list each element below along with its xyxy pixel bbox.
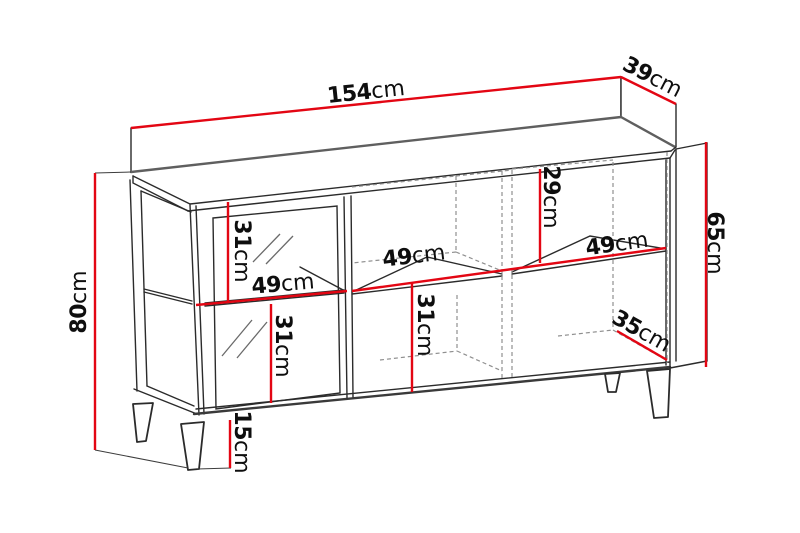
dim-unit: cm <box>280 269 316 297</box>
dim-value: 65 <box>702 211 727 241</box>
dim-label-overall-height: 80cm <box>69 270 91 333</box>
dim-value: 15 <box>229 410 254 440</box>
dim-value: 49 <box>250 272 282 299</box>
dim-label-leg-height: 15cm <box>230 410 252 473</box>
dim-label-carcass-height: 65cm <box>703 211 725 274</box>
dim-value: 31 <box>412 293 437 323</box>
leg-front-left <box>181 422 204 470</box>
dim-label-left-shelf-width: 49cm <box>251 271 316 298</box>
dim-label-left-upper-height: 31cm <box>230 219 252 282</box>
dim-label-left-lower-height: 31cm <box>271 314 293 377</box>
dim-value: 31 <box>270 314 295 344</box>
glass-side-panel <box>141 191 194 406</box>
dim-value: 154 <box>326 80 373 110</box>
dim-unit: cm <box>412 323 437 357</box>
dim-label-middle-lower-height: 31cm <box>413 293 435 356</box>
dim-unit: cm <box>702 241 727 275</box>
leg-front-right <box>647 369 670 418</box>
dim-unit: cm <box>410 240 446 269</box>
dim-value: 29 <box>538 165 563 195</box>
witness-lines <box>95 172 231 469</box>
dim-unit: cm <box>613 228 650 257</box>
dim-unit: cm <box>67 270 92 304</box>
dim-value: 31 <box>229 219 254 249</box>
legs <box>133 369 670 470</box>
dim-value: 49 <box>381 244 413 272</box>
dim-unit: cm <box>229 440 254 474</box>
dim-value: 49 <box>584 232 617 261</box>
dim-unit: cm <box>538 195 563 229</box>
dim-label-right-upper-height: 29cm <box>539 165 561 228</box>
dimension-diagram: 154cm 39cm 80cm 65cm 29cm 31cm 49cm 31cm… <box>0 0 800 533</box>
dim-unit: cm <box>270 344 295 378</box>
leg-back-left <box>133 403 153 442</box>
dim-value: 80 <box>67 304 92 334</box>
dim-unit: cm <box>370 76 406 104</box>
leg-back-right <box>605 373 620 392</box>
